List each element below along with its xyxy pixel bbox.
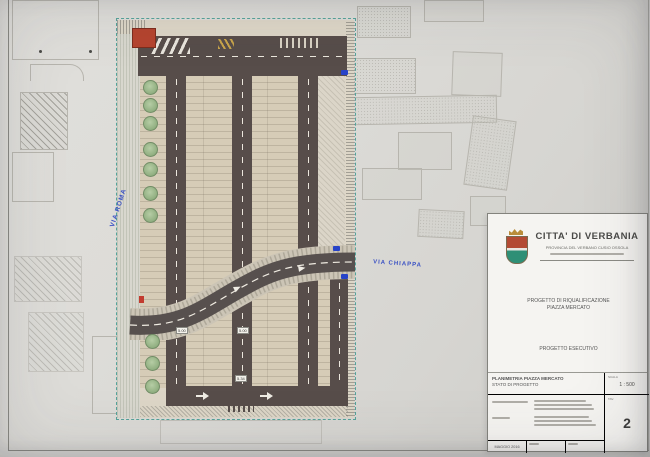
sheet-label: TAV. (608, 397, 646, 401)
survey-dot (39, 50, 42, 53)
context-building (12, 152, 54, 202)
title-block: CITTA' DI VERBANIA PROVINCIA DEL VERBANO… (487, 213, 648, 452)
tree-icon (145, 334, 160, 349)
scale-label: SCALA (608, 375, 646, 379)
parking-stall-marks (280, 38, 320, 48)
context-building-hatched (14, 256, 82, 302)
header-rule (540, 260, 634, 261)
scanned-drawing-photo: 5.00 5.00 5.34 VIA ROMA VIA CHIAPPA CITT… (0, 0, 650, 457)
province-name: PROVINCIA DEL VERBANO CUSIO OSSOLA (530, 245, 644, 250)
personnel-text-bar (534, 424, 596, 426)
context-building (424, 0, 484, 22)
red-marker (139, 296, 144, 303)
tree-icon (143, 98, 158, 113)
direction-arrow-right (196, 392, 213, 400)
crest-shield (506, 236, 528, 264)
blue-marker (341, 70, 348, 75)
tree-icon (145, 356, 160, 371)
blue-marker (333, 246, 340, 251)
project-title-line1: PROGETTO DI RIQUALIFICAZIONE (498, 298, 639, 304)
tree-icon (145, 379, 160, 394)
context-building (463, 115, 516, 190)
personnel-text-bar (534, 404, 592, 406)
drawing-title-cell: PLANIMETRIA PIAZZA MERCATO STATO DI PROG… (488, 373, 605, 395)
sheet-number-cell: TAV. 2 (605, 395, 649, 453)
context-building (30, 64, 84, 81)
drawing-title-line2: STATO DI PROGETTO (492, 382, 600, 387)
road-marking-yellow (218, 39, 234, 49)
crest-crown (509, 229, 523, 235)
revision-label-bar (529, 443, 539, 445)
project-title-line2: PIAZZA MERCATO (498, 305, 639, 311)
direction-arrow-right (260, 392, 277, 400)
city-crest-icon (504, 229, 528, 265)
context-building-hatched (20, 92, 68, 150)
red-roof-building (132, 28, 156, 48)
personnel-text-bar (534, 408, 594, 410)
context-building-hatched (28, 312, 84, 372)
date-cell: MAGGIO 2016 (488, 441, 527, 453)
dimension-tag: 5.34 (235, 375, 247, 382)
context-building (357, 6, 411, 38)
personnel-label-bar (492, 401, 528, 403)
street-label-via-chiappa: VIA CHIAPPA (373, 259, 422, 268)
personnel-text-bar (534, 420, 592, 422)
road-centerline (141, 56, 344, 57)
context-building (12, 0, 99, 60)
tree-icon (143, 80, 158, 95)
context-building (398, 132, 452, 170)
context-building (352, 58, 416, 94)
sheet-frame-left (8, 0, 9, 451)
city-name: CITTA' DI VERBANIA (530, 231, 644, 242)
revision-cell (566, 441, 605, 453)
personnel-text-bar (534, 400, 586, 402)
pedestrian-crossing (150, 38, 190, 54)
dimension-tag: 5.00 (176, 327, 188, 334)
title-block-table: PLANIMETRIA PIAZZA MERCATO STATO DI PROG… (488, 372, 647, 451)
context-building (362, 168, 422, 200)
revision-label-bar (568, 443, 578, 445)
blue-marker (341, 274, 348, 279)
context-building (417, 209, 464, 239)
s-curve-road (105, 225, 365, 340)
arrow-head (267, 392, 277, 400)
scale-cell: SCALA 1 : 500 (605, 373, 649, 395)
personnel-text-bar (534, 416, 589, 418)
revision-cell (527, 441, 566, 453)
tree-icon (143, 162, 158, 177)
pedestrian-crossing-small (228, 402, 254, 412)
context-building (451, 51, 503, 97)
arrow-head (203, 392, 213, 400)
phase-label: PROGETTO ESECUTIVO (498, 346, 639, 352)
sheet-number: 2 (608, 415, 646, 431)
personnel-label-bar (492, 417, 510, 419)
address-line (550, 253, 624, 255)
date-value: MAGGIO 2016 (494, 445, 519, 449)
context-outline (160, 420, 322, 444)
road-top (138, 36, 347, 76)
scale-value: 1 : 500 (608, 382, 646, 388)
tree-icon (143, 186, 158, 201)
personnel-cell (488, 395, 605, 441)
dimension-tag: 5.00 (237, 327, 249, 334)
tree-icon (143, 208, 158, 223)
tree-icon (143, 142, 158, 157)
drawing-title-line1: PLANIMETRIA PIAZZA MERCATO (492, 376, 600, 381)
survey-dot (89, 50, 92, 53)
tree-icon (143, 116, 158, 131)
road-bottom (166, 386, 348, 406)
